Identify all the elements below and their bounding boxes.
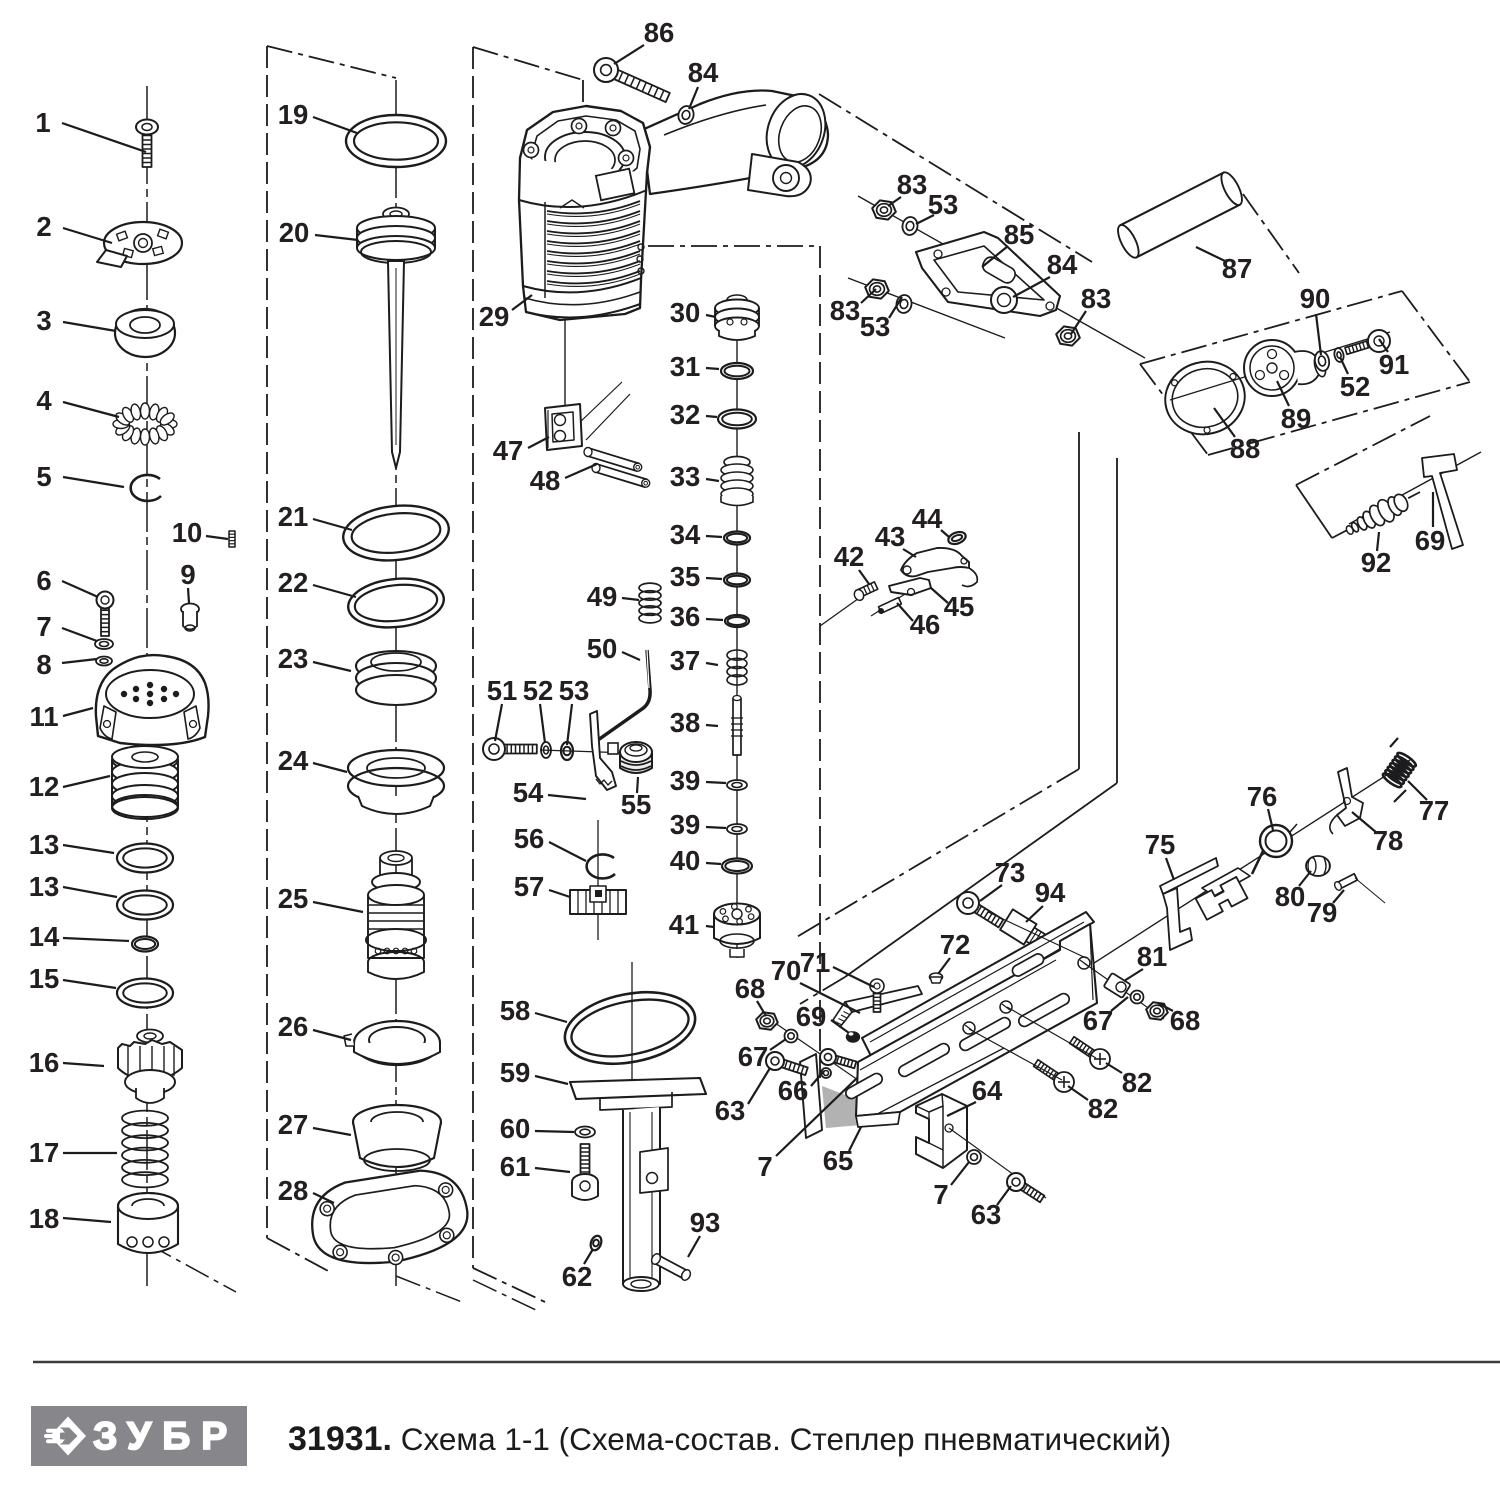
svg-text:1: 1 [35,107,50,138]
svg-text:58: 58 [500,995,531,1026]
svg-text:19: 19 [278,99,309,130]
svg-text:82: 82 [1122,1067,1153,1098]
svg-text:48: 48 [530,465,561,496]
svg-text:49: 49 [587,581,618,612]
svg-text:14: 14 [29,921,60,952]
svg-text:53: 53 [559,675,590,706]
svg-text:82: 82 [1088,1093,1119,1124]
svg-text:87: 87 [1222,253,1253,284]
svg-text:17: 17 [29,1137,60,1168]
svg-text:11: 11 [29,701,58,732]
svg-text:2: 2 [36,211,51,242]
svg-text:60: 60 [500,1113,531,1144]
svg-text:66: 66 [778,1075,809,1106]
svg-text:55: 55 [621,789,652,820]
svg-text:76: 76 [1247,781,1278,812]
svg-text:64: 64 [972,1075,1003,1106]
svg-text:7: 7 [933,1179,948,1210]
svg-text:83: 83 [1081,283,1112,314]
svg-text:86: 86 [644,17,675,48]
svg-text:67: 67 [1083,1005,1114,1036]
svg-text:78: 78 [1373,825,1404,856]
svg-text:30: 30 [670,297,701,328]
svg-text:68: 68 [1170,1005,1201,1036]
svg-text:71: 71 [800,947,831,978]
svg-text:89: 89 [1281,403,1312,434]
svg-text:3: 3 [36,305,51,336]
svg-text:32: 32 [670,399,701,430]
svg-text:81: 81 [1137,941,1168,972]
svg-text:37: 37 [670,645,701,676]
svg-text:23: 23 [278,643,309,674]
svg-text:6: 6 [36,565,51,596]
svg-text:84: 84 [1047,249,1078,280]
svg-text:50: 50 [587,633,618,664]
svg-text:83: 83 [897,169,928,200]
svg-text:7: 7 [757,1151,772,1182]
svg-text:79: 79 [1307,897,1338,928]
svg-text:59: 59 [500,1057,531,1088]
svg-text:56: 56 [514,823,545,854]
svg-text:63: 63 [715,1095,746,1126]
svg-text:75: 75 [1145,829,1176,860]
svg-text:22: 22 [278,567,309,598]
svg-text:42: 42 [834,541,865,572]
svg-text:80: 80 [1275,881,1306,912]
svg-text:36: 36 [670,601,701,632]
svg-text:65: 65 [823,1145,854,1176]
svg-text:26: 26 [278,1011,309,1042]
svg-text:54: 54 [513,777,544,808]
svg-text:ЗУБР: ЗУБР [93,1415,238,1458]
svg-text:29: 29 [479,301,510,332]
svg-text:12: 12 [29,771,60,802]
svg-text:13: 13 [29,829,60,860]
svg-text:15: 15 [29,963,60,994]
svg-text:35: 35 [670,561,701,592]
svg-text:7: 7 [36,611,51,642]
svg-text:53: 53 [860,311,891,342]
svg-text:70: 70 [771,955,802,986]
svg-text:51: 51 [487,675,518,706]
svg-text:31931. Схема 1-1 (Схема-состав: 31931. Схема 1-1 (Схема-состав. Степлер … [288,1420,1171,1458]
svg-text:33: 33 [670,461,701,492]
svg-text:25: 25 [278,883,309,914]
svg-text:57: 57 [514,871,545,902]
svg-text:61: 61 [500,1151,531,1182]
svg-text:52: 52 [1340,371,1371,402]
svg-text:90: 90 [1300,283,1331,314]
svg-text:62: 62 [562,1261,593,1292]
svg-text:45: 45 [944,591,975,622]
svg-text:39: 39 [670,809,701,840]
svg-text:77: 77 [1419,795,1450,826]
svg-text:39: 39 [670,765,701,796]
svg-text:44: 44 [912,503,943,534]
svg-text:28: 28 [278,1175,309,1206]
svg-text:88: 88 [1230,433,1261,464]
svg-text:41: 41 [669,909,700,940]
svg-text:18: 18 [29,1203,60,1234]
svg-text:69: 69 [1415,525,1446,556]
svg-text:20: 20 [279,217,310,248]
svg-text:10: 10 [172,517,203,548]
svg-text:84: 84 [688,57,719,88]
svg-text:16: 16 [29,1047,60,1078]
svg-text:13: 13 [29,871,60,902]
svg-text:34: 34 [670,519,701,550]
svg-text:92: 92 [1361,547,1392,578]
svg-text:40: 40 [670,845,701,876]
svg-text:53: 53 [928,189,959,220]
svg-text:94: 94 [1035,877,1066,908]
svg-text:8: 8 [36,649,51,680]
svg-text:91: 91 [1379,349,1410,380]
svg-text:47: 47 [493,435,524,466]
svg-text:27: 27 [278,1109,309,1140]
svg-text:68: 68 [735,973,766,1004]
svg-text:63: 63 [971,1199,1002,1230]
svg-text:69: 69 [796,1001,827,1032]
svg-text:21: 21 [278,501,309,532]
svg-text:38: 38 [670,707,701,738]
svg-text:93: 93 [690,1207,721,1238]
svg-text:4: 4 [36,385,52,416]
svg-text:5: 5 [36,461,51,492]
svg-text:43: 43 [875,521,906,552]
svg-text:85: 85 [1004,219,1035,250]
svg-text:52: 52 [523,675,554,706]
svg-text:24: 24 [278,745,309,776]
svg-text:46: 46 [910,609,941,640]
svg-text:72: 72 [940,929,971,960]
svg-text:9: 9 [180,559,195,590]
svg-text:67: 67 [738,1041,769,1072]
svg-text:73: 73 [995,857,1026,888]
svg-text:31: 31 [670,351,701,382]
svg-text:83: 83 [830,295,861,326]
